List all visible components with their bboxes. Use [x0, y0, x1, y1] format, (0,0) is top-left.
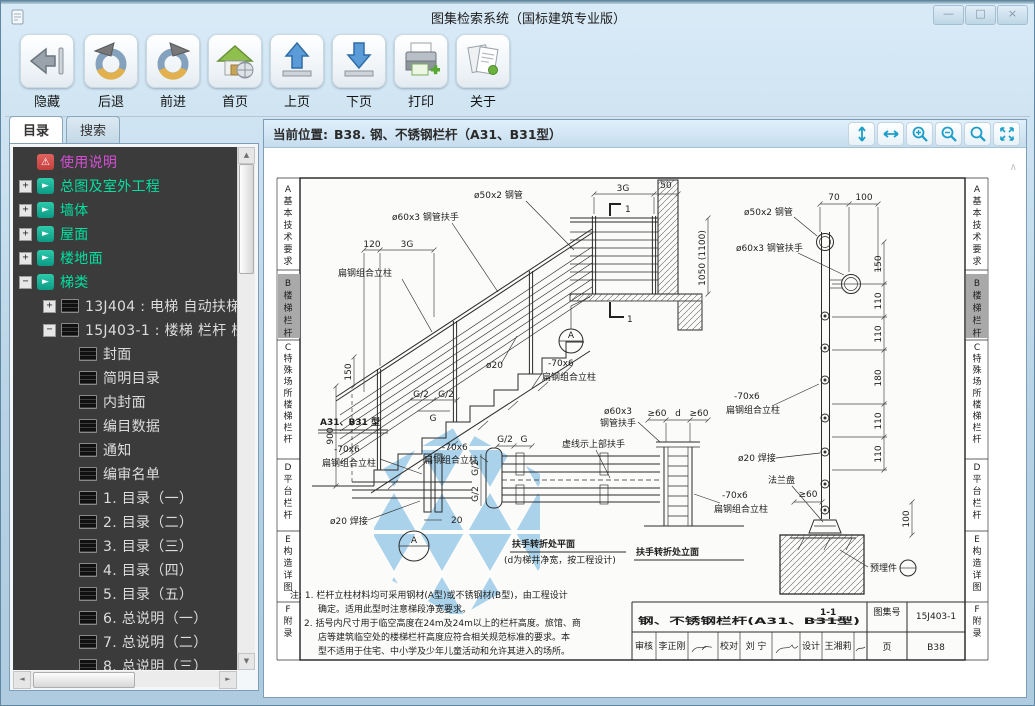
margin-tab: D平台栏杆 — [283, 463, 292, 521]
dim-label: G/2 — [471, 460, 481, 476]
drawing-label: 扁钢组合立柱 — [424, 454, 478, 466]
expand-plus-icon[interactable]: + — [19, 180, 32, 193]
tree-item-label: 内封面 — [103, 392, 146, 412]
dim-label: 110 — [874, 445, 884, 462]
drawing-label: ø20 焊接 — [738, 452, 776, 464]
dim-label: G — [521, 435, 528, 445]
tree-item-page[interactable]: 6. 总说明（一） — [13, 606, 237, 630]
drawing-label: 扁钢组合立柱 — [322, 457, 376, 469]
toolbar-button-page-up[interactable]: 上页 — [269, 34, 325, 110]
toolbar-button-label: 前进 — [145, 91, 201, 110]
drawing-label: -70x6 — [734, 392, 760, 402]
folder-icon: ► — [37, 178, 54, 194]
drawing-label: 法兰盘 — [768, 474, 795, 486]
tree-item-label: 通知 — [103, 440, 132, 460]
window-frame-top — [1, 1, 1034, 4]
drawing-label: ø60x3 钢管扶手 — [392, 211, 459, 223]
scroll-down-icon[interactable]: ▼ — [238, 653, 255, 670]
fit-width-icon[interactable] — [877, 122, 904, 146]
toolbar-button-about[interactable]: 关于 — [455, 34, 511, 110]
catalog-tree-frame: ⚠使用说明 +►总图及室外工程 +►墙体 +►屋面 +►楼地面 −►梯类 +13… — [9, 143, 259, 691]
note-line: 店等建筑临空处的楼梯栏杆高度应符合相关规范标准的要求。本 — [318, 631, 570, 643]
toolbar-button-label: 上页 — [269, 91, 325, 110]
toolbar-button-label: 关于 — [455, 91, 511, 110]
catalog-tree: ⚠使用说明 +►总图及室外工程 +►墙体 +►屋面 +►楼地面 −►梯类 +13… — [13, 147, 237, 670]
review-name: 李正刚 — [658, 640, 685, 652]
dim-label: G — [430, 414, 437, 424]
page-up-icon — [270, 34, 324, 88]
close-button[interactable]: × — [997, 5, 1028, 25]
detail-title: 扶手转折处平面 — [512, 538, 575, 550]
dim-label: ≥60 — [799, 490, 818, 500]
hide-arrow-icon — [20, 34, 74, 88]
tree-item-page[interactable]: 编审名单 — [13, 462, 237, 486]
tree-item-label: 6. 总说明（一） — [103, 608, 208, 628]
fit-height-icon[interactable] — [848, 122, 875, 146]
sheet-title: 钢、不锈钢栏杆(A31、B31型) — [638, 615, 860, 627]
toolbar-button-home[interactable]: 首页 — [207, 34, 263, 110]
page-thumb-icon — [79, 419, 97, 433]
sidebar-tabs: 目录 搜索 — [9, 119, 259, 143]
dim-label: 100 — [855, 193, 872, 203]
margin-tab: E构造详图 — [972, 535, 981, 593]
drawing-label: 钢管扶手 — [600, 417, 636, 429]
toolbar-button-label: 打印 — [393, 91, 449, 110]
zoom-out-icon[interactable] — [935, 122, 962, 146]
page-thumb-icon — [79, 395, 97, 409]
tree-item-page[interactable]: 5. 目录（五） — [13, 582, 237, 606]
dim-label: G/2 — [497, 435, 513, 445]
margin-tab: A基本技术要求 — [972, 185, 981, 267]
page-down-icon — [332, 34, 386, 88]
app-icon — [9, 8, 27, 26]
tree-item-label: 1. 目录（一） — [103, 488, 193, 508]
page-label: 页 — [882, 642, 891, 653]
folder-icon: ► — [37, 250, 54, 266]
toolbar-button-print[interactable]: 打印 — [393, 34, 449, 110]
tree-item-page[interactable]: 2. 目录（二） — [13, 510, 237, 534]
toolbar-button-label: 隐藏 — [19, 91, 75, 110]
tree-item-roof[interactable]: +►屋面 — [13, 222, 237, 246]
note-line: 2. 括号内尺寸用于临空高度在24m及24m以上的栏杆高度。旅馆、商 — [304, 617, 581, 629]
tree-item-label: 使用说明 — [60, 152, 117, 172]
window-controls: — □ × — [932, 5, 1028, 25]
back-circle-icon — [84, 34, 138, 88]
drawing-label: -70x6 — [442, 443, 468, 453]
margin-tab: E构造详图 — [283, 535, 292, 593]
note-line: 型不适用于住宅、中小学及少年儿童活动和允许其进入的场所。 — [318, 645, 570, 657]
folder-icon: ► — [37, 202, 54, 218]
page-thumb-icon — [79, 371, 97, 385]
page-thumb-icon — [79, 347, 97, 361]
about-icon — [456, 34, 510, 88]
margin-tab: C特殊场所楼梯栏杆 — [283, 343, 292, 445]
check-name: 刘 宁 — [746, 640, 767, 652]
drawing-label: -70x6 — [722, 491, 748, 501]
drawing-label: ø50x2 钢管 — [744, 206, 793, 218]
tree-item-label: 墙体 — [60, 200, 89, 220]
tab-search[interactable]: 搜索 — [66, 116, 120, 143]
tree-item-label: 编审名单 — [103, 464, 160, 484]
toolbar-button-back[interactable]: 后退 — [83, 34, 139, 110]
content-panel: 当前位置: B38. 钢、不锈钢栏杆（A31、B31型） — [263, 119, 1027, 698]
dim-label: 110 — [874, 325, 884, 342]
tree-item-page[interactable]: 通知 — [13, 438, 237, 462]
zoom-in-icon[interactable] — [906, 122, 933, 146]
page-thumb-icon — [79, 587, 97, 601]
drawing-label: -70x6 — [334, 445, 360, 455]
drawing-label: -70x6 — [548, 359, 574, 369]
tree-item-atlas-13j404[interactable]: +13J404 : 电梯 自动扶梯 自动 — [13, 294, 237, 318]
page-thumb-icon — [79, 611, 97, 625]
dim-label: 70 — [828, 193, 840, 203]
note-line: 确定。适用此型时注意梯段净宽要求。 — [318, 603, 471, 615]
tree-item-label: 7. 总说明（二） — [103, 632, 208, 652]
toolbar-button-hide[interactable]: 隐藏 — [19, 34, 75, 110]
tree-item-site-works[interactable]: +►总图及室外工程 — [13, 174, 237, 198]
position-label: 当前位置: — [273, 124, 328, 143]
folder-icon: ► — [37, 226, 54, 242]
design-name: 王湘莉 — [824, 640, 851, 652]
drawing-label: 预埋件 — [870, 562, 897, 574]
maximize-button[interactable]: □ — [965, 5, 996, 25]
page-thumb-icon — [79, 563, 97, 577]
drawing-sheet: A基本技术要求 B楼梯栏杆 C特殊场所楼梯栏杆 D平台栏杆 E构造详图 F附录 … — [274, 154, 992, 692]
margin-tab: F附录 — [283, 605, 292, 639]
tree-item-label: 15J403-1 : 楼梯 栏杆 栏板 — [85, 320, 237, 340]
collapse-minus-icon[interactable]: − — [19, 276, 32, 289]
position-value: B38. 钢、不锈钢栏杆（A31、B31型） — [334, 124, 562, 143]
minimize-button[interactable]: — — [933, 5, 964, 25]
window-title: 图集检索系统（国标建筑专业版） — [27, 8, 1030, 27]
drawing-label: 扁钢组合立柱 — [542, 371, 596, 383]
titlebar[interactable]: 图集检索系统（国标建筑专业版） — □ × — [5, 5, 1030, 29]
print-icon — [394, 34, 448, 88]
dim-label: 120 — [363, 240, 380, 250]
toolbar: 隐藏 后退 前进 首页 上页 下页 打印 关于 — [5, 29, 1030, 116]
section-mark: 1 — [625, 205, 631, 215]
dim-label: 50 — [660, 181, 672, 191]
folder-icon: ► — [37, 274, 54, 290]
dim-label: 110 — [874, 292, 884, 309]
toolbar-button-page-down[interactable]: 下页 — [331, 34, 387, 110]
drawing-label: ø20 — [486, 361, 503, 371]
magnifier-icon[interactable] — [964, 122, 991, 146]
tree-item-label: 编目数据 — [103, 416, 160, 436]
scrollbar-thumb[interactable] — [33, 672, 135, 688]
tree-item-page[interactable]: 1. 目录（一） — [13, 486, 237, 510]
fit-page-icon[interactable] — [993, 122, 1020, 146]
dim-label: ≥60 — [690, 409, 709, 419]
drawing-label: ø60x3 — [604, 407, 632, 417]
dim-label: 110 — [874, 412, 884, 429]
scrollbar-thumb[interactable] — [239, 164, 254, 274]
tree-item-walls[interactable]: +►墙体 — [13, 198, 237, 222]
review-label: 审核 — [635, 640, 653, 652]
note-line: 注: 1. 栏杆立柱材料均可采用钢材(A型)或不锈钢材(B型)，由工程设计 — [290, 589, 568, 601]
page-no: B38 — [927, 643, 945, 653]
tree-item-label: 13J404 : 电梯 自动扶梯 自动 — [85, 296, 237, 316]
tree-item-label: 楼地面 — [60, 248, 103, 268]
detail-mark: A — [411, 536, 418, 546]
dim-label: ≥60 — [648, 409, 667, 419]
expand-plus-icon[interactable]: + — [19, 228, 32, 241]
tree-item-label: 8. 总说明（三） — [103, 656, 208, 670]
drawing-label: 扁钢组合立柱 — [338, 267, 392, 279]
page-thumb-icon — [79, 539, 97, 553]
tree-item-label: 梯类 — [60, 272, 89, 292]
tree-horizontal-scrollbar[interactable]: ◄ ► — [13, 671, 237, 687]
page-thumb-icon — [79, 443, 97, 457]
atlas-thumb-icon — [61, 323, 79, 337]
dim-label: 3G — [401, 240, 414, 250]
collapse-minus-icon[interactable]: − — [43, 324, 56, 337]
scroll-left-icon[interactable]: ◄ — [13, 671, 31, 689]
margin-tab: A基本技术要求 — [283, 185, 292, 267]
dim-label: G/2 — [413, 390, 429, 400]
position-bar: 当前位置: B38. 钢、不锈钢栏杆（A31、B31型） — [264, 120, 1026, 148]
page-thumb-icon — [79, 467, 97, 481]
tree-item-page[interactable]: 8. 总说明（三） — [13, 654, 237, 670]
toolbar-button-forward[interactable]: 前进 — [145, 34, 201, 110]
tree-item-floors[interactable]: +►楼地面 — [13, 246, 237, 270]
check-label: 校对 — [720, 640, 738, 652]
tree-item-label: 屋面 — [60, 224, 89, 244]
sidebar: 目录 搜索 ⚠使用说明 +►总图及室外工程 +►墙体 +►屋面 +►楼地面 −►… — [9, 119, 259, 691]
tree-item-atlas-15j403-1[interactable]: −15J403-1 : 楼梯 栏杆 栏板 — [13, 318, 237, 342]
detail-subtitle: (d为梯井净宽，按工程设计) — [504, 554, 616, 566]
scroll-right-icon[interactable]: ► — [219, 671, 237, 689]
page-thumb-icon — [79, 515, 97, 529]
scroll-up-icon[interactable]: ▲ — [238, 147, 255, 164]
dim-label: G/2 — [438, 390, 454, 400]
tree-vertical-scrollbar[interactable]: ▲ ▼ — [237, 147, 255, 670]
toolbar-button-label: 后退 — [83, 91, 139, 110]
atlas-thumb-icon — [61, 299, 79, 313]
drawing-label: 虚线示上部扶手 — [562, 438, 625, 450]
page-thumb-icon — [79, 491, 97, 505]
tree-item-label: 5. 目录（五） — [103, 584, 193, 604]
tree-item-label: 4. 目录（四） — [103, 560, 193, 580]
dim-label: 100 — [902, 510, 912, 527]
detail-mark: A — [568, 331, 575, 341]
dim-label: 180 — [874, 369, 884, 386]
expand-plus-icon[interactable]: + — [43, 300, 56, 313]
dim-label: 20 — [451, 516, 463, 526]
toolbar-button-label: 下页 — [331, 91, 387, 110]
page-thumb-icon — [79, 659, 97, 670]
detail-title: A31、B31 型 — [320, 416, 380, 428]
forward-circle-icon — [146, 34, 200, 88]
dim-label: 150 — [874, 255, 884, 272]
drawing-label: ø60x3 钢管扶手 — [736, 242, 803, 254]
warning-icon: ⚠ — [37, 154, 54, 170]
tree-item-page[interactable]: 7. 总说明（二） — [13, 630, 237, 654]
tree-item-stairs[interactable]: −►梯类 — [13, 270, 237, 294]
margin-tab: F附录 — [972, 605, 981, 639]
drawing-label: ø20 焊接 — [330, 515, 368, 527]
tree-item-label: 封面 — [103, 344, 132, 364]
dim-label: 150 — [344, 363, 354, 380]
tree-item-label: 3. 目录（三） — [103, 536, 193, 556]
toolbar-button-label: 首页 — [207, 91, 263, 110]
tree-item-page[interactable]: 编目数据 — [13, 414, 237, 438]
margin-tab: C特殊场所楼梯栏杆 — [972, 343, 981, 445]
expand-plus-icon[interactable]: + — [19, 204, 32, 217]
zoom-toolbar — [846, 122, 1020, 146]
drawing-label: ø50x2 钢管 — [474, 189, 523, 201]
tree-item-page[interactable]: 简明目录 — [13, 366, 237, 390]
app-window: 图集检索系统（国标建筑专业版） — □ × 隐藏 后退 前进 首页 上页 — [0, 0, 1035, 706]
tree-item-page[interactable]: 封面 — [13, 342, 237, 366]
dim-label: 3G — [617, 184, 630, 194]
home-icon — [208, 34, 262, 88]
tree-item-page[interactable]: 3. 目录（三） — [13, 534, 237, 558]
expand-plus-icon[interactable]: + — [19, 252, 32, 265]
tree-item-label: 总图及室外工程 — [60, 176, 160, 196]
tree-item-label: 2. 目录（二） — [103, 512, 193, 532]
viewer-scroll-up-icon[interactable]: ∧ — [1010, 162, 1017, 173]
margin-tab: D平台栏杆 — [972, 463, 981, 521]
detail-title: 扶手转折处立面 — [636, 546, 699, 558]
tree-item-label: 简明目录 — [103, 368, 160, 388]
dim-label: 1050 (1100) — [698, 230, 708, 286]
drawing-notes: 注: 1. 栏杆立柱材料均可采用钢材(A型)或不锈钢材(B型)，由工程设计 确定… — [290, 589, 581, 657]
tab-catalog[interactable]: 目录 — [9, 116, 63, 143]
drawing-viewer[interactable]: A基本技术要求 B楼梯栏杆 C特殊场所楼梯栏杆 D平台栏杆 E构造详图 F附录 … — [264, 148, 1026, 697]
atlas-no: 15J403-1 — [916, 612, 956, 622]
toolbar-separator — [5, 116, 1030, 118]
tree-item-usage-notes[interactable]: ⚠使用说明 — [13, 150, 237, 174]
dim-label: G/2 — [471, 486, 481, 502]
dim-label: d — [675, 409, 681, 419]
drawing-label: 扁钢组合立柱 — [714, 503, 768, 515]
tree-item-page[interactable]: 4. 目录（四） — [13, 558, 237, 582]
section-mark: 1 — [627, 315, 633, 325]
atlas-no-label: 图集号 — [873, 606, 900, 618]
page-thumb-icon — [79, 635, 97, 649]
tree-item-page[interactable]: 内封面 — [13, 390, 237, 414]
design-label: 设计 — [802, 640, 820, 652]
